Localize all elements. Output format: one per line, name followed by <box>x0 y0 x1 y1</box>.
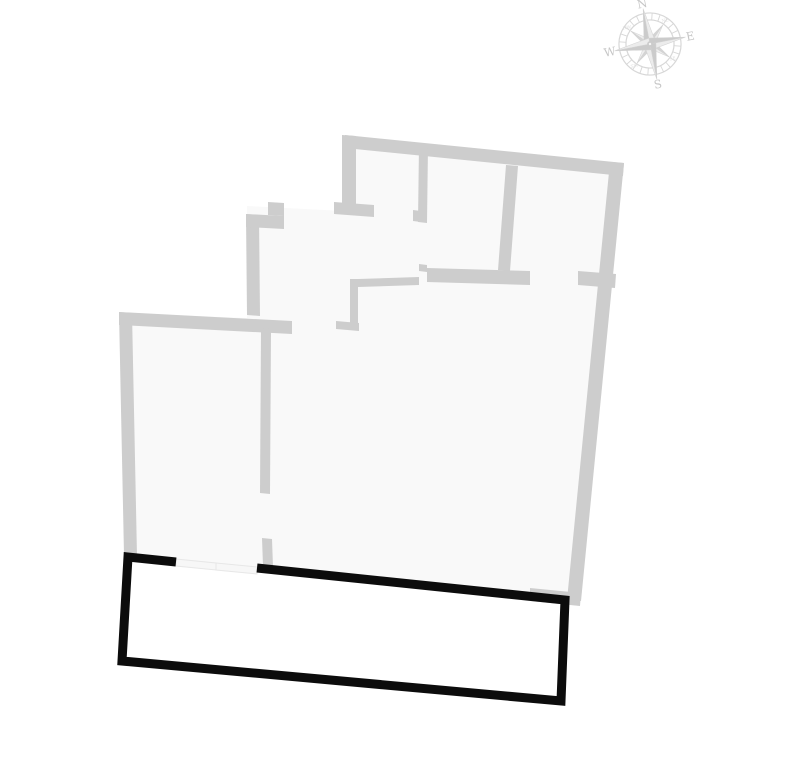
compass-tick <box>647 68 650 75</box>
compass-tick <box>674 44 681 47</box>
compass-tick <box>650 13 653 20</box>
compass-tick <box>661 65 664 72</box>
wall-segment <box>342 135 356 204</box>
wall-segment <box>246 214 260 316</box>
compass-tick <box>636 16 639 23</box>
compass-direction-label: N <box>636 0 649 12</box>
compass-intercardinal-label: SW <box>630 63 639 70</box>
wall-segment <box>350 279 358 326</box>
compass-rose-icon: NESWNESESWNW <box>595 0 704 100</box>
compass-tick <box>673 51 680 56</box>
floorplan-canvas: NESWNESESWNW <box>0 0 787 781</box>
compass-intercardinal-label: NW <box>622 24 632 32</box>
wall-segment <box>419 264 427 272</box>
compass-tick <box>622 55 629 58</box>
compass-tick <box>626 60 633 65</box>
compass-tick <box>619 41 626 44</box>
compass-tick <box>671 30 678 33</box>
compass-tick <box>639 67 644 74</box>
compass-tick <box>621 33 628 38</box>
wall-segment <box>268 202 284 216</box>
compass-intercardinal-label: NE <box>661 17 669 24</box>
wall-segment <box>262 538 273 567</box>
wall-segment <box>413 210 421 222</box>
wall-segment <box>246 214 284 229</box>
wall-segment <box>260 328 271 494</box>
compass-direction-label: W <box>603 44 617 60</box>
compass-tick <box>667 24 674 29</box>
compass-direction-label: S <box>653 77 664 92</box>
compass-intercardinal-label: SE <box>669 55 676 62</box>
compass-direction-label: E <box>685 29 696 44</box>
floor-plan-drawing: NESWNESESWNW <box>0 0 787 781</box>
